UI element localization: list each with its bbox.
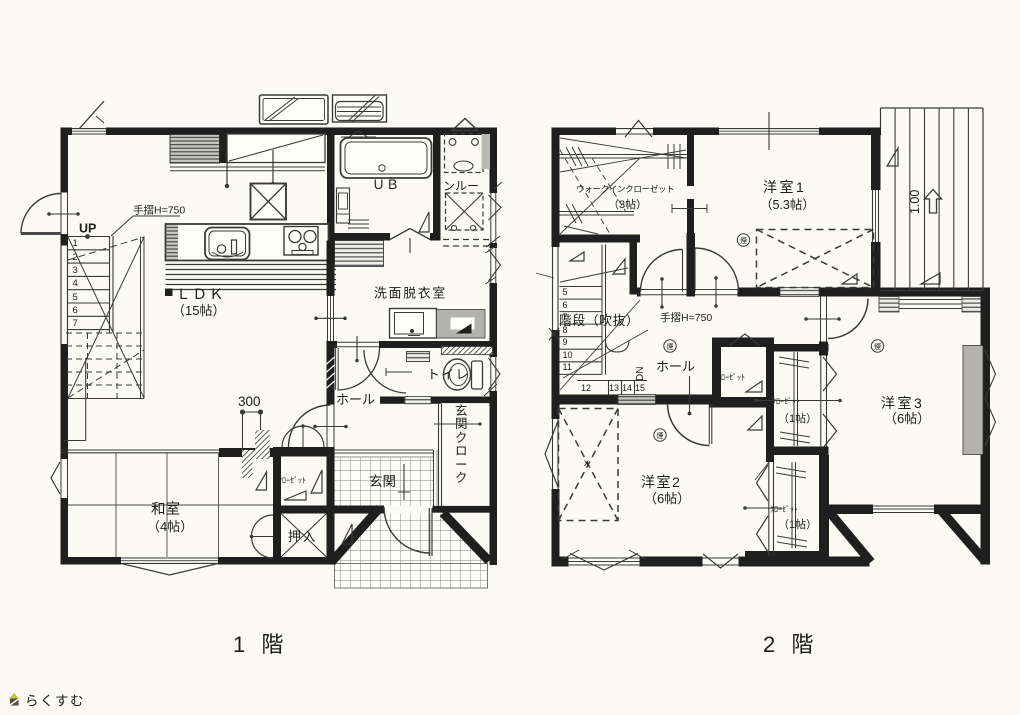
- svg-text:（15帖）: （15帖）: [172, 303, 225, 318]
- svg-text:手摺H=750: 手摺H=750: [660, 311, 712, 324]
- svg-text:ウォークインクローゼット: ウォークインクローゼット: [576, 183, 674, 194]
- svg-text:ホール: ホール: [656, 359, 695, 374]
- svg-text:7: 7: [73, 318, 78, 329]
- svg-text:ｸﾛｰｾﾞｯﾄ: ｸﾛｰｾﾞｯﾄ: [278, 476, 306, 485]
- svg-text:（1帖）: （1帖）: [778, 518, 817, 531]
- svg-text:300: 300: [238, 394, 261, 409]
- svg-text:3: 3: [73, 265, 78, 276]
- svg-text:洋室3: 洋室3: [881, 395, 924, 411]
- svg-text:らくすむ: らくすむ: [25, 694, 85, 709]
- svg-text:ク: ク: [455, 471, 468, 485]
- svg-text:ｸﾛｰｾﾞｯﾄ: ｸﾛｰｾﾞｯﾄ: [772, 397, 800, 406]
- svg-text:押入: 押入: [288, 529, 318, 544]
- svg-text:洋室2: 洋室2: [641, 474, 681, 490]
- svg-text:ンルー: ンルー: [443, 179, 479, 193]
- svg-text:ｸﾛｰｾﾞｯﾄ: ｸﾛｰｾﾞｯﾄ: [770, 505, 798, 514]
- svg-text:手摺H=750: 手摺H=750: [133, 204, 185, 217]
- svg-text:（1帖）: （1帖）: [778, 412, 817, 425]
- svg-text:ＬＤＫ: ＬＤＫ: [176, 287, 226, 303]
- svg-text:煙: 煙: [740, 236, 747, 245]
- svg-text:6: 6: [563, 300, 568, 310]
- svg-text:ホール: ホール: [336, 392, 375, 407]
- svg-text:13: 13: [609, 383, 619, 393]
- svg-text:14: 14: [622, 383, 632, 393]
- svg-text:UP: UP: [79, 222, 96, 236]
- svg-text:ロ: ロ: [455, 444, 468, 458]
- svg-text:5: 5: [563, 287, 568, 297]
- svg-text:11: 11: [563, 362, 572, 372]
- svg-text:1.00: 1.00: [908, 190, 922, 214]
- svg-text:洗面脱衣室: 洗面脱衣室: [374, 286, 447, 301]
- svg-text:ク: ク: [455, 431, 468, 445]
- svg-text:煙: 煙: [657, 431, 664, 440]
- svg-text:9: 9: [563, 337, 568, 347]
- svg-text:ＵＢ: ＵＢ: [372, 177, 400, 192]
- svg-text:6: 6: [73, 305, 78, 316]
- svg-text:2: 2: [73, 252, 78, 263]
- svg-text:（6帖）: （6帖）: [884, 411, 930, 426]
- svg-text:洋室1: 洋室1: [763, 179, 806, 195]
- svg-text:（6帖）: （6帖）: [644, 491, 690, 506]
- svg-text:2 階: 2 階: [763, 632, 818, 657]
- svg-text:煙: 煙: [667, 342, 674, 351]
- svg-text:階段（吹抜）: 階段（吹抜）: [559, 313, 639, 328]
- svg-text:DN: DN: [635, 367, 646, 381]
- svg-text:5: 5: [73, 292, 78, 303]
- svg-text:和室: 和室: [151, 501, 180, 518]
- svg-text:1 階: 1 階: [233, 632, 288, 657]
- svg-text:12: 12: [581, 383, 591, 393]
- svg-text:x: x: [584, 458, 589, 469]
- svg-text:（4帖）: （4帖）: [147, 519, 193, 534]
- svg-text:ｸﾛｰｾﾞｯﾄ: ｸﾛｰｾﾞｯﾄ: [717, 373, 745, 382]
- svg-text:（5.3帖）: （5.3帖）: [760, 197, 815, 212]
- svg-text:10: 10: [563, 350, 573, 360]
- svg-text:トイレ: トイレ: [427, 367, 470, 382]
- svg-text:ー: ー: [455, 458, 468, 472]
- svg-text:玄: 玄: [455, 403, 468, 418]
- svg-text:4: 4: [73, 278, 78, 289]
- svg-text:15: 15: [635, 383, 645, 393]
- svg-text:煙: 煙: [874, 342, 881, 351]
- svg-text:玄関: 玄関: [369, 473, 396, 489]
- svg-text:（3帖）: （3帖）: [608, 198, 647, 211]
